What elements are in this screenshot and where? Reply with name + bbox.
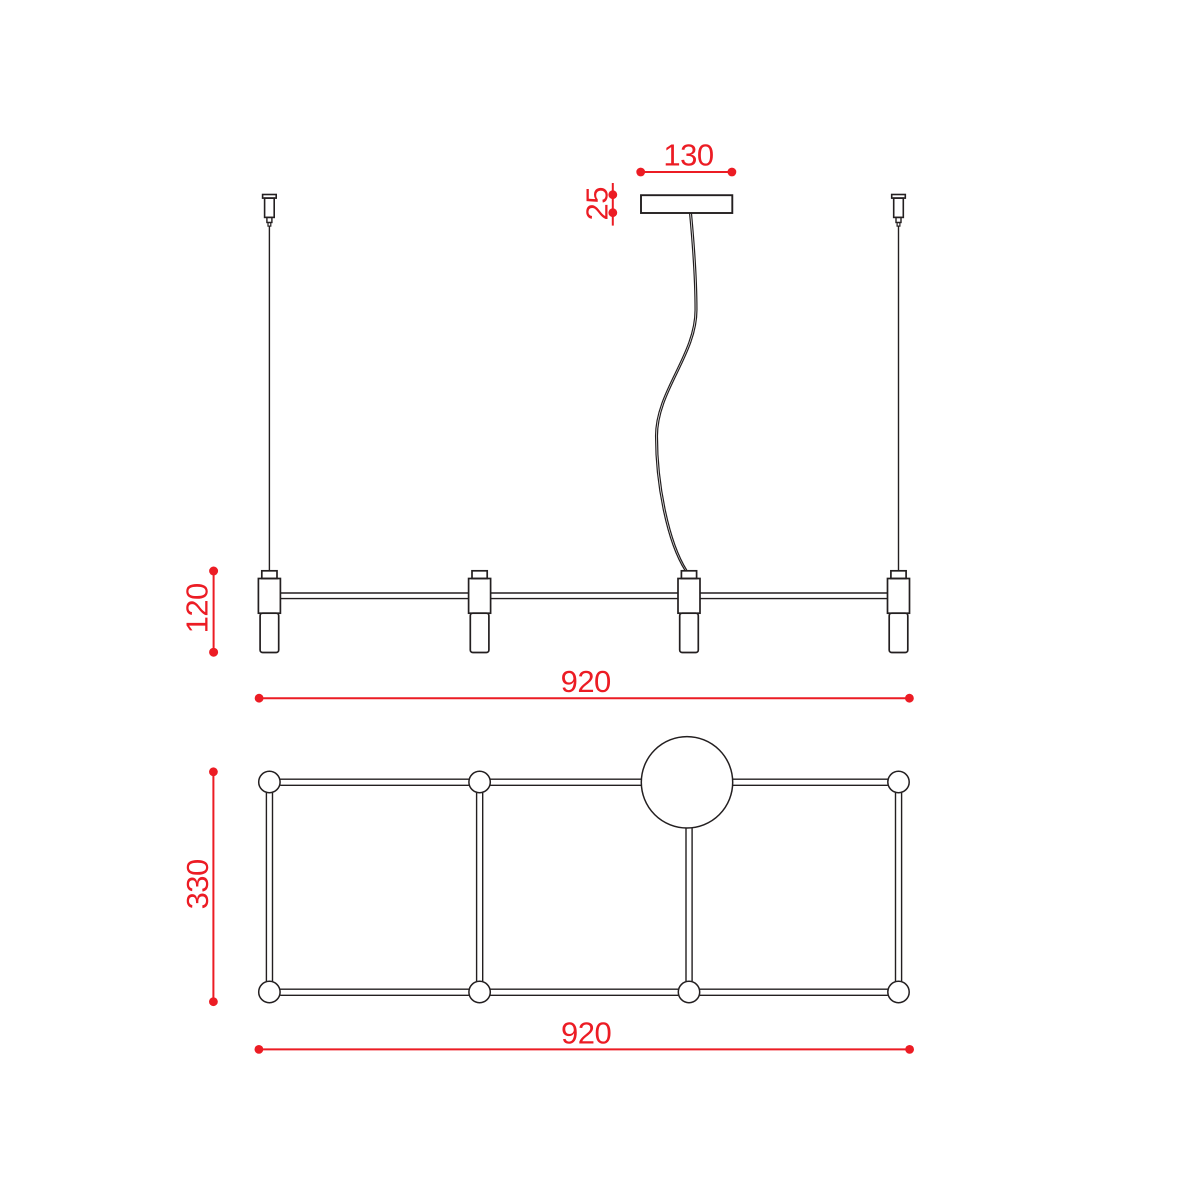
- svg-text:120: 120: [180, 583, 215, 633]
- svg-text:130: 130: [663, 138, 713, 173]
- svg-text:920: 920: [561, 664, 611, 699]
- svg-text:330: 330: [180, 859, 215, 909]
- svg-text:25: 25: [580, 187, 615, 220]
- svg-text:920: 920: [561, 1016, 611, 1051]
